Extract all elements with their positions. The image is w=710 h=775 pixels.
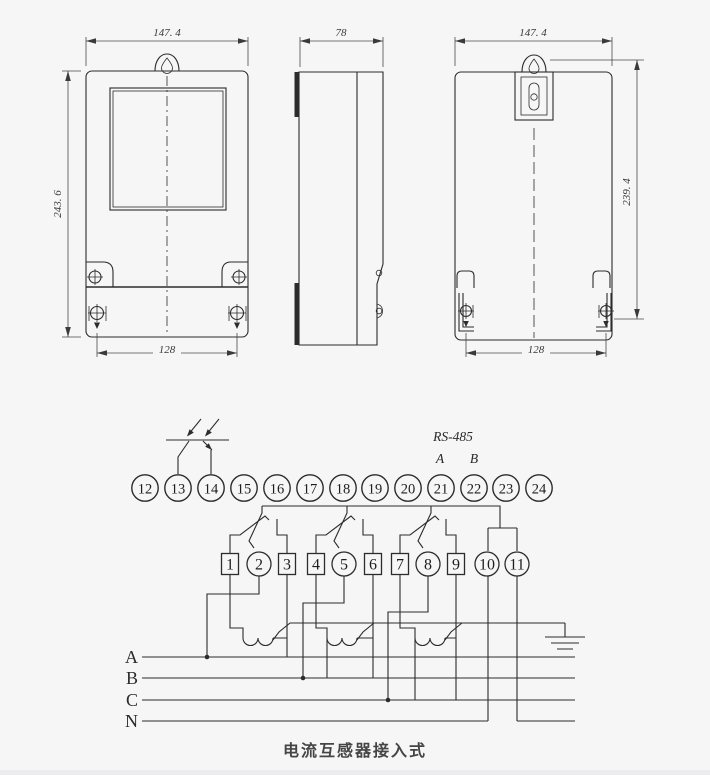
side-flange-bottom (295, 283, 300, 345)
terminal-18: 18 (330, 475, 356, 501)
terminal-14: 14 (198, 475, 224, 501)
phase-b-label: B (126, 668, 138, 688)
side-top-extension-lines (300, 37, 383, 67)
back-hanger-slot-hole (531, 94, 537, 100)
back-body-outline (455, 72, 612, 340)
front-height-dim: 243. 6 (52, 190, 64, 218)
current-transformer-a (230, 575, 290, 657)
terminal-15: 15 (231, 475, 257, 501)
phase-n-label: N (125, 711, 138, 731)
side-width-dim: 78 (336, 27, 348, 39)
terminal-label: 13 (171, 482, 186, 498)
phase-c-label: C (126, 690, 138, 710)
terminal-10: 10 (475, 552, 499, 576)
terminal-label: 24 (532, 482, 547, 498)
front-window-inner (113, 91, 223, 207)
side-view: 78 (295, 27, 384, 345)
terminal-label: 17 (303, 482, 318, 498)
earth-icon (545, 637, 585, 649)
terminal-label: 22 (467, 482, 482, 498)
front-screw-bottom-right (228, 304, 246, 329)
page-bottom-strip (0, 770, 710, 775)
terminal-label: 9 (452, 557, 460, 574)
rs485-a-label: A (435, 451, 445, 466)
back-mount-dim: 128 (528, 344, 545, 356)
back-width-dim: 147. 4 (519, 27, 547, 39)
terminal-23: 23 (493, 475, 519, 501)
back-bracket-right (596, 293, 611, 331)
terminal-22: 22 (461, 475, 487, 501)
terminal-20: 20 (395, 475, 421, 501)
terminal-label: 1 (226, 557, 234, 574)
rs485-b-label: B (470, 451, 478, 466)
terminal-16: 16 (264, 475, 290, 501)
terminal-label: 8 (424, 557, 432, 574)
front-width-dim: 147. 4 (153, 27, 181, 39)
terminal-17: 17 (297, 475, 323, 501)
terminal-label: 5 (340, 557, 348, 574)
pulse-output-phototransistor-icon (166, 419, 229, 474)
top-terminal-row: 12131415161718192021222324 (132, 475, 552, 501)
front-screw-bottom-left (88, 304, 106, 329)
front-view: 147. 4 243. 6 128 (52, 27, 248, 357)
side-flange-top (295, 72, 300, 117)
rs485-label: RS-485 (432, 429, 473, 444)
meter-technical-drawing: 147. 4 243. 6 128 78 (0, 0, 710, 775)
terminal-24: 24 (526, 475, 552, 501)
front-left-extension-lines (62, 71, 81, 337)
current-transformer-b (316, 575, 374, 678)
voltage-link-group-c (400, 506, 456, 553)
back-eyelet-hole (529, 59, 539, 74)
back-height-dim: 239. 4 (621, 178, 633, 206)
wiring-caption: 电流互感器接入式 (283, 741, 427, 760)
terminal-5: 5 (332, 552, 356, 576)
terminal-12: 12 (132, 475, 158, 501)
terminal-label: 6 (369, 557, 377, 574)
terminal-label: 14 (204, 482, 219, 498)
terminal-3: 3 (279, 554, 296, 575)
front-screw-top-left (87, 269, 103, 285)
back-eyelet-icon (522, 55, 546, 72)
terminal-7: 7 (392, 554, 409, 575)
terminal-9: 9 (448, 554, 465, 575)
terminal-label: 10 (479, 557, 495, 574)
back-tab-left (457, 271, 474, 288)
voltage-link-bus (262, 506, 517, 551)
front-window-outer (110, 88, 226, 210)
voltage-link-group-a (230, 506, 287, 553)
bottom-terminal-row: 1234567891011 (222, 552, 530, 576)
back-tab-right (593, 271, 610, 288)
terminal-label: 7 (396, 557, 404, 574)
terminal-label: 23 (499, 482, 514, 498)
front-screw-top-right (231, 269, 247, 285)
terminal-label: 19 (368, 482, 383, 498)
front-mount-dim: 128 (159, 344, 176, 356)
terminal-21: 21 (428, 475, 454, 501)
terminal-19: 19 (362, 475, 388, 501)
terminal-label: 18 (336, 482, 351, 498)
terminal-label: 21 (434, 482, 449, 498)
terminal-4: 4 (308, 554, 325, 575)
terminal-label: 20 (401, 482, 416, 498)
wiring-diagram: RS-485 A B (125, 419, 585, 760)
back-view: 147. 4 239. 4 128 (455, 27, 644, 357)
terminal-13: 13 (165, 475, 191, 501)
back-screw-left (458, 303, 474, 327)
terminal-label: 12 (138, 482, 153, 498)
terminal-6: 6 (365, 554, 382, 575)
phase-a-label: A (125, 647, 138, 667)
current-transformer-c (400, 575, 462, 700)
terminal-label: 4 (312, 557, 320, 574)
side-body-outline (299, 72, 383, 345)
neutral-leads (488, 576, 517, 721)
terminal-1: 1 (222, 554, 239, 575)
voltage-link-group-b (316, 506, 373, 553)
terminal-label: 3 (283, 557, 291, 574)
terminal-11: 11 (505, 552, 529, 576)
terminal-label: 11 (509, 557, 524, 574)
terminal-label: 16 (270, 482, 285, 498)
terminal-label: 15 (237, 482, 252, 498)
side-latch-upper (376, 270, 382, 276)
terminal-8: 8 (416, 552, 440, 576)
front-eyelet-icon (155, 54, 179, 71)
terminal-label: 2 (255, 557, 263, 574)
phase-lines (142, 657, 575, 721)
terminal-2: 2 (247, 552, 271, 576)
